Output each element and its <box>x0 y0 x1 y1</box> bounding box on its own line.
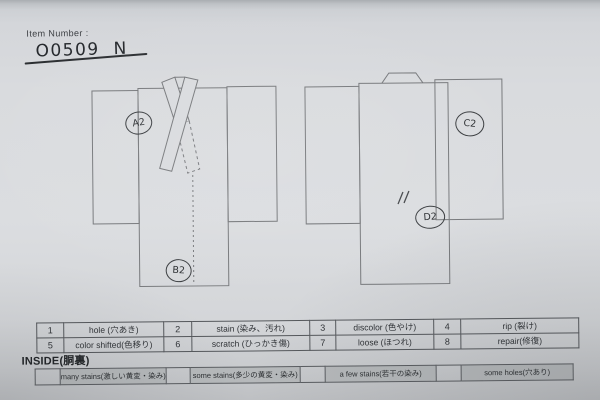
condition-code-table: 1 hole (穴あき) 2 stain (染み、汚れ) 3 discolor … <box>36 317 579 353</box>
code-number: 1 <box>37 323 64 338</box>
code-number: 6 <box>164 337 192 352</box>
code-label: stain (染み、汚れ) <box>192 320 310 336</box>
annotation-label: D2 <box>423 212 437 223</box>
code-label: rip (裂け) <box>461 318 579 334</box>
code-label: hole (穴あき) <box>64 322 164 338</box>
code-number: 8 <box>434 334 461 349</box>
inside-option-label: some stains(多少の黄変・染み) <box>190 367 300 384</box>
inside-option-label: many stains(激しい黄変・染み) <box>60 368 166 385</box>
code-number: 7 <box>310 335 336 350</box>
code-label: discolor (色やけ) <box>336 319 434 335</box>
annotation-label: C2 <box>463 119 477 130</box>
back-neckband <box>382 73 423 83</box>
front-right-sleeve <box>227 86 277 221</box>
code-number: 4 <box>434 319 461 334</box>
inside-option-label: a few stains(若干の染み) <box>325 365 436 382</box>
inside-checkbox-cell <box>35 369 60 385</box>
kimono-front-outline <box>92 76 278 287</box>
front-center-dashed-line <box>193 175 194 285</box>
inside-option-label: some holes(穴あり) <box>461 364 573 381</box>
front-left-sleeve <box>92 91 139 224</box>
photo-of-document: Item Number : O0509 N <box>0 0 600 400</box>
double-slash-mark <box>398 191 409 204</box>
back-right-sleeve <box>435 79 503 220</box>
back-left-sleeve <box>305 86 360 224</box>
inside-section-label: INSIDE(胴裏) <box>21 352 89 369</box>
inside-checkbox-cell <box>166 368 190 384</box>
code-number: 3 <box>310 320 336 335</box>
code-label: color shifted(色移り) <box>64 337 164 353</box>
code-label: scratch (ひっかき傷) <box>192 335 310 351</box>
annotation-label: A2 <box>132 117 146 128</box>
kimono-back-outline <box>305 72 504 285</box>
code-number: 5 <box>37 338 64 353</box>
paper-sheet: Item Number : O0509 N <box>0 0 600 400</box>
inside-checkbox-cell <box>300 366 325 382</box>
code-label: repair(修復) <box>461 333 579 349</box>
code-number: 2 <box>164 322 192 337</box>
annotation-label: B2 <box>172 266 185 276</box>
inside-checkbox-cell <box>436 365 461 381</box>
code-label: loose (ほつれ) <box>336 334 434 350</box>
